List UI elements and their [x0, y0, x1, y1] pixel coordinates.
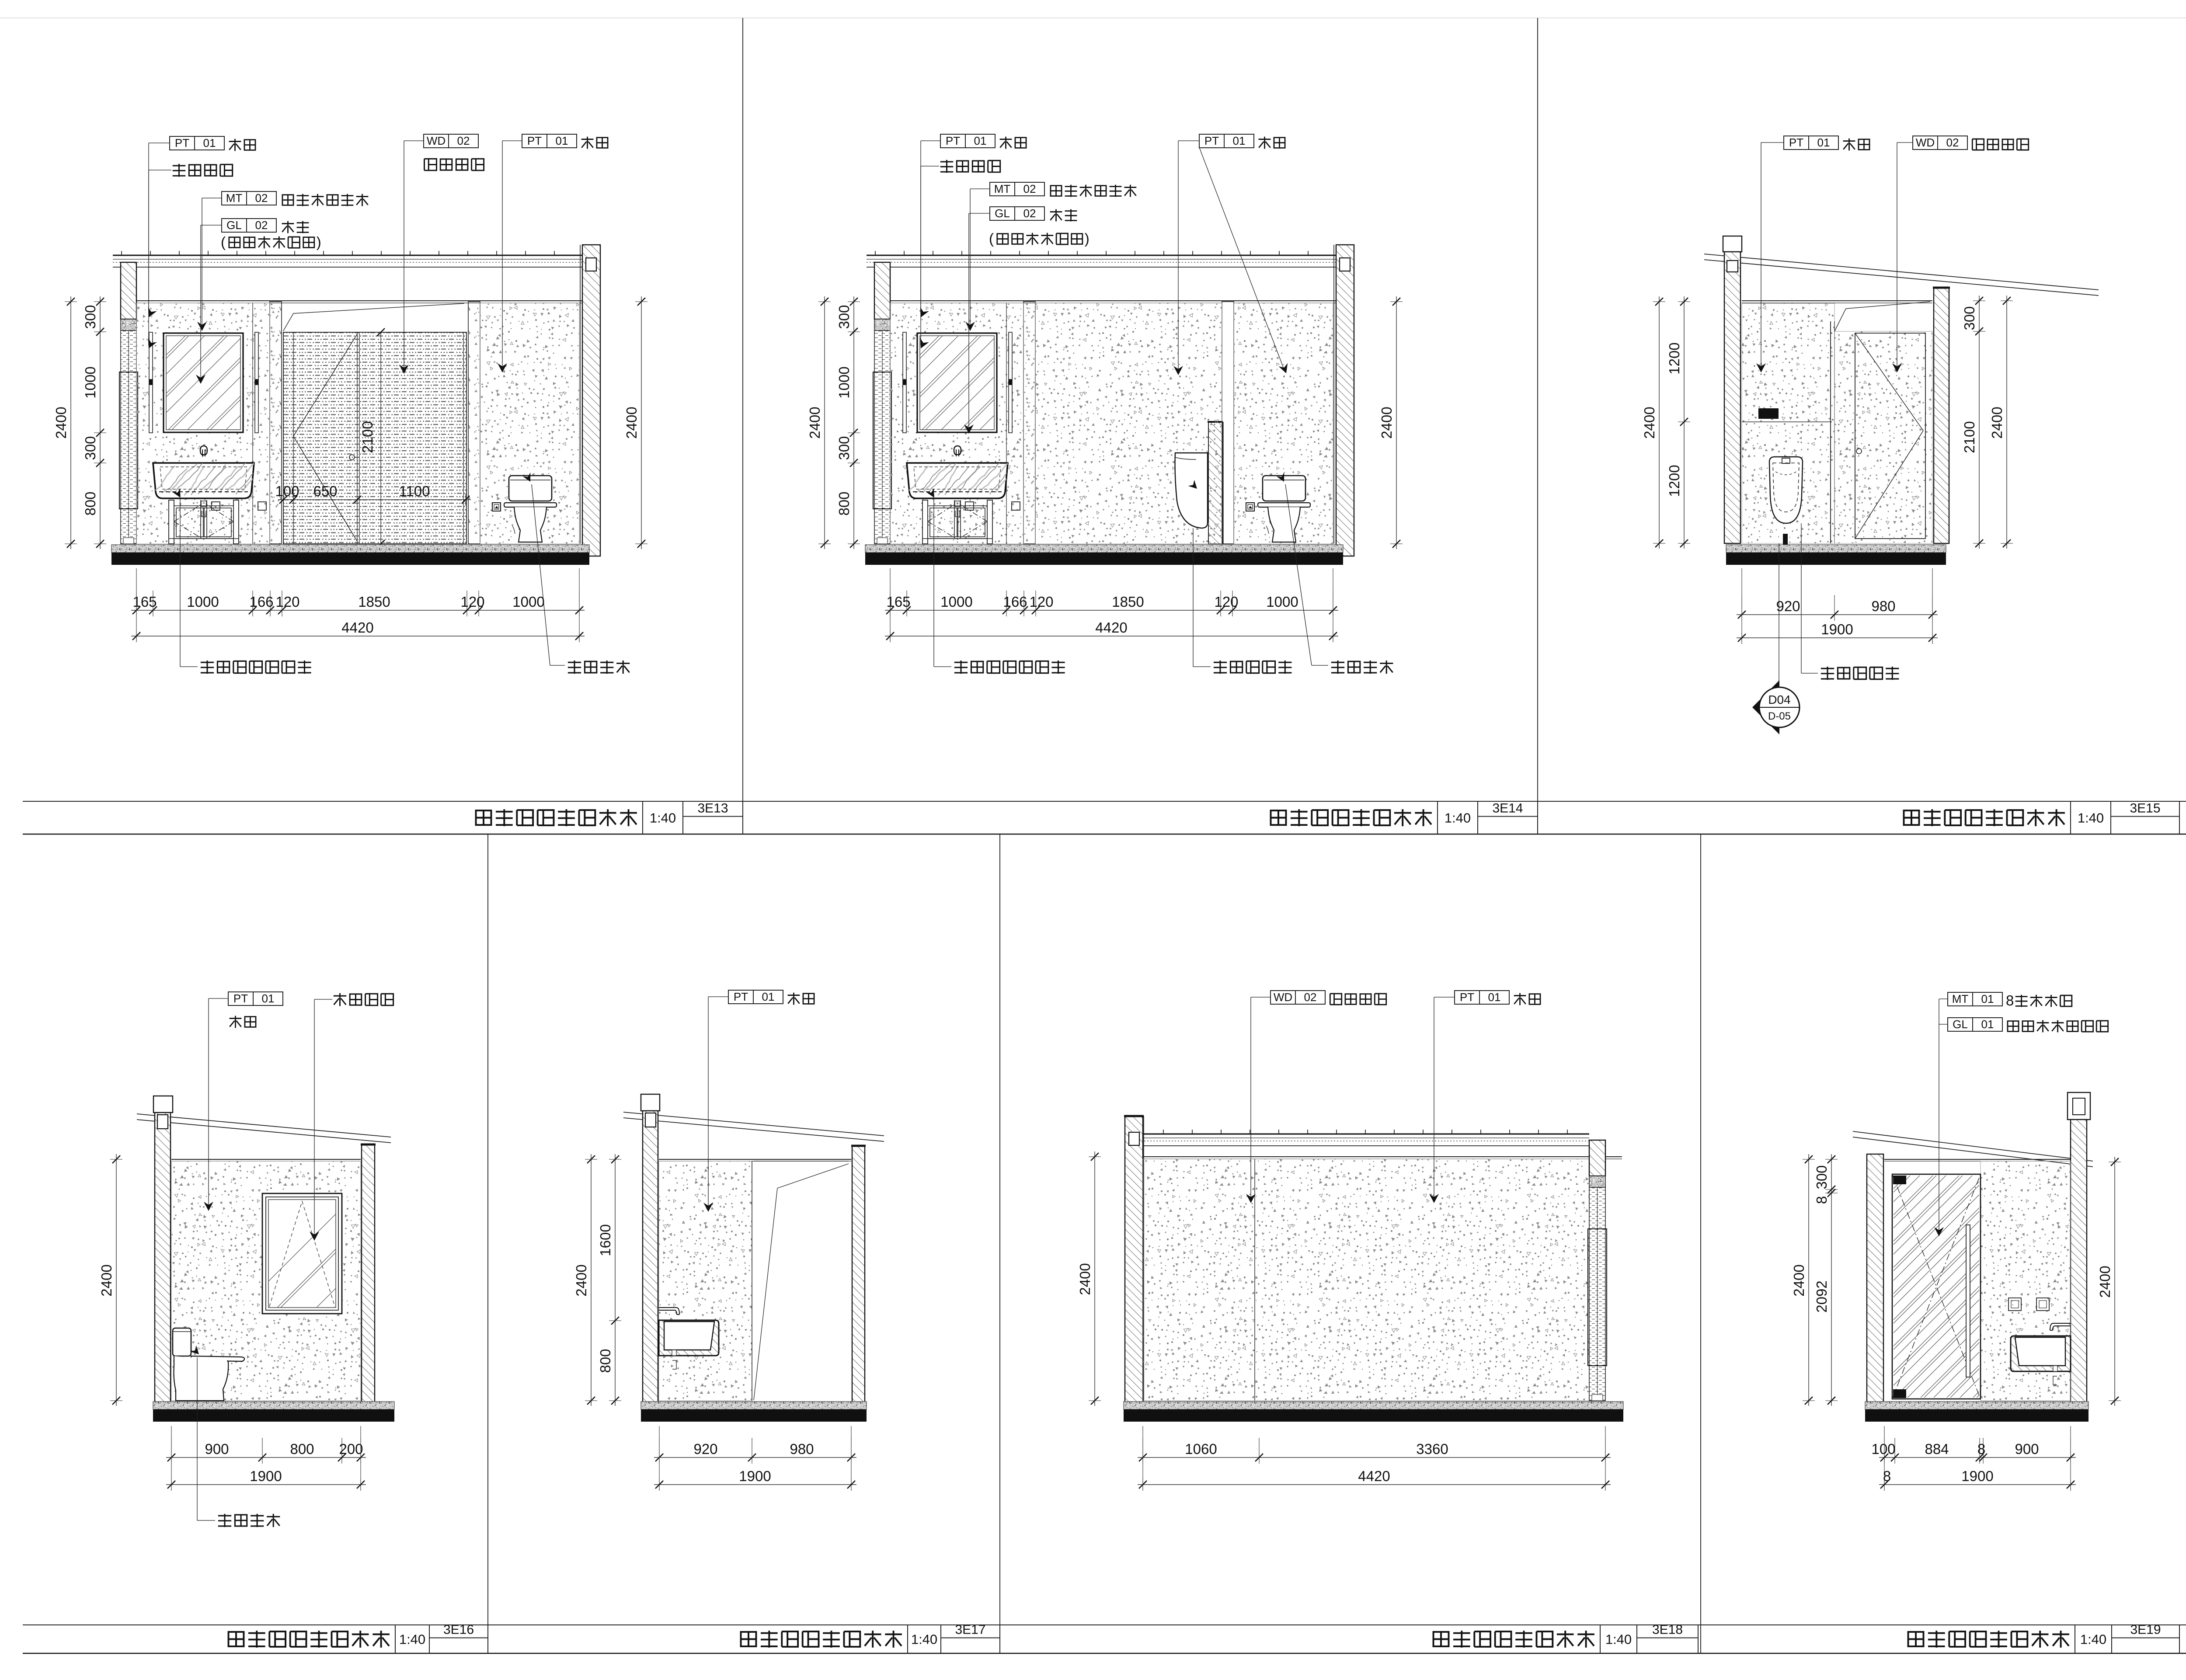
- svg-text:1850: 1850: [358, 594, 390, 610]
- svg-text:980: 980: [1871, 598, 1895, 614]
- svg-text:3E14: 3E14: [1492, 801, 1523, 816]
- svg-text:1850: 1850: [1112, 594, 1144, 610]
- svg-text:1:40: 1:40: [911, 1632, 937, 1647]
- svg-text:2100: 2100: [359, 421, 376, 453]
- svg-text:800: 800: [597, 1349, 613, 1373]
- svg-text:2400: 2400: [1989, 407, 2005, 438]
- svg-text:920: 920: [693, 1441, 717, 1457]
- svg-text:2400: 2400: [1378, 407, 1395, 438]
- svg-text:3E13: 3E13: [697, 801, 728, 816]
- svg-text:02: 02: [1023, 207, 1036, 220]
- svg-text:PT: PT: [527, 134, 542, 147]
- svg-text:1:40: 1:40: [1445, 810, 1471, 826]
- svg-text:100: 100: [1871, 1441, 1895, 1457]
- svg-text:01: 01: [203, 136, 216, 150]
- svg-text:): ): [317, 234, 321, 250]
- svg-text:1:40: 1:40: [2078, 810, 2104, 826]
- svg-text:300: 300: [82, 305, 98, 329]
- svg-text:4420: 4420: [341, 619, 373, 636]
- svg-text:2400: 2400: [98, 1264, 115, 1296]
- svg-text:MT: MT: [226, 191, 243, 205]
- svg-text:1:40: 1:40: [399, 1632, 425, 1647]
- svg-text:2400: 2400: [1641, 407, 1657, 438]
- svg-text:920: 920: [1776, 598, 1800, 614]
- svg-text:2400: 2400: [573, 1264, 589, 1296]
- svg-text:(: (: [989, 230, 994, 247]
- svg-text:02: 02: [1946, 136, 1959, 149]
- svg-text:2400: 2400: [1791, 1264, 1807, 1296]
- svg-text:120: 120: [1214, 594, 1238, 610]
- svg-text:GL: GL: [995, 207, 1010, 220]
- svg-text:1000: 1000: [187, 594, 219, 610]
- svg-text:300: 300: [836, 305, 852, 329]
- svg-text:2400: 2400: [1077, 1263, 1093, 1295]
- svg-text:166: 166: [1003, 594, 1027, 610]
- svg-text:WD: WD: [1916, 136, 1935, 149]
- svg-text:1000: 1000: [836, 366, 852, 398]
- svg-text:300: 300: [836, 436, 852, 460]
- svg-text:01: 01: [762, 990, 775, 1003]
- svg-text:200: 200: [339, 1441, 363, 1457]
- svg-text:800: 800: [836, 491, 852, 515]
- svg-text:D-05: D-05: [1768, 710, 1791, 722]
- svg-text:4420: 4420: [1095, 619, 1127, 636]
- svg-text:300: 300: [82, 436, 98, 460]
- svg-text:01: 01: [1817, 136, 1830, 149]
- svg-text:MT: MT: [994, 182, 1011, 195]
- svg-text:120: 120: [275, 594, 299, 610]
- svg-text:MT: MT: [1952, 992, 1969, 1005]
- svg-text:1000: 1000: [940, 594, 972, 610]
- svg-text:3E17: 3E17: [955, 1623, 985, 1637]
- svg-text:980: 980: [790, 1441, 814, 1457]
- svg-text:1900: 1900: [1961, 1468, 1993, 1484]
- svg-text:PT: PT: [734, 990, 748, 1003]
- svg-text:900: 900: [2015, 1441, 2039, 1457]
- svg-text:2400: 2400: [807, 407, 823, 438]
- svg-text:01: 01: [1981, 992, 1994, 1005]
- svg-text:1000: 1000: [512, 594, 544, 610]
- svg-text:01: 01: [1981, 1018, 1994, 1031]
- svg-text:3E16: 3E16: [443, 1623, 474, 1637]
- svg-text:1:40: 1:40: [1605, 1632, 1632, 1647]
- svg-text:120: 120: [460, 594, 484, 610]
- svg-text:1:40: 1:40: [2080, 1632, 2106, 1647]
- svg-text:WD: WD: [1274, 991, 1292, 1004]
- svg-text:3E15: 3E15: [2130, 801, 2160, 816]
- svg-text:2400: 2400: [2097, 1266, 2113, 1297]
- svg-text:02: 02: [1023, 182, 1036, 195]
- svg-text:PT: PT: [1789, 136, 1803, 149]
- svg-text:166: 166: [249, 594, 273, 610]
- svg-text:GL: GL: [226, 219, 242, 232]
- svg-text:2092: 2092: [1814, 1280, 1830, 1312]
- svg-text:4420: 4420: [1358, 1468, 1390, 1484]
- svg-text:1600: 1600: [597, 1224, 613, 1256]
- svg-text:1000: 1000: [82, 366, 98, 398]
- svg-text:PT: PT: [1460, 991, 1474, 1004]
- svg-text:8: 8: [2006, 992, 2014, 1009]
- svg-text:1100: 1100: [399, 483, 430, 499]
- svg-text:2100: 2100: [1961, 421, 1977, 453]
- svg-text:300: 300: [1961, 306, 1977, 330]
- svg-text:900: 900: [205, 1441, 229, 1457]
- svg-text:100: 100: [275, 483, 299, 499]
- svg-text:800: 800: [82, 491, 98, 515]
- svg-text:3360: 3360: [1416, 1441, 1448, 1457]
- svg-text:WD: WD: [427, 134, 446, 147]
- svg-text:3E18: 3E18: [1652, 1623, 1683, 1637]
- svg-text:1200: 1200: [1666, 465, 1682, 497]
- svg-text:2400: 2400: [53, 407, 69, 438]
- svg-text:PT: PT: [233, 992, 248, 1005]
- svg-text:1:40: 1:40: [650, 810, 676, 826]
- svg-text:01: 01: [1233, 134, 1246, 147]
- svg-text:1200: 1200: [1666, 342, 1682, 374]
- svg-text:2400: 2400: [623, 407, 640, 438]
- svg-text:01: 01: [974, 134, 987, 147]
- svg-text:650: 650: [313, 483, 337, 499]
- svg-text:1000: 1000: [1266, 594, 1298, 610]
- svg-text:02: 02: [255, 219, 268, 232]
- svg-text:(: (: [221, 234, 226, 250]
- svg-text:884: 884: [1925, 1441, 1949, 1457]
- svg-text:1900: 1900: [250, 1468, 282, 1484]
- svg-text:3E19: 3E19: [2130, 1623, 2161, 1637]
- svg-text:): ): [1085, 230, 1090, 247]
- svg-text:01: 01: [262, 992, 275, 1005]
- svg-text:02: 02: [255, 191, 268, 205]
- svg-text:01: 01: [556, 134, 568, 147]
- svg-text:02: 02: [1304, 991, 1317, 1004]
- svg-text:PT: PT: [175, 136, 189, 150]
- svg-text:PT: PT: [1204, 134, 1219, 147]
- svg-text:GL: GL: [1953, 1018, 1968, 1031]
- svg-text:1060: 1060: [1185, 1441, 1217, 1457]
- svg-text:300: 300: [1814, 1165, 1830, 1189]
- svg-text:8: 8: [1977, 1441, 1985, 1457]
- svg-text:D04: D04: [1768, 693, 1790, 706]
- svg-text:120: 120: [1029, 594, 1053, 610]
- svg-text:1900: 1900: [1821, 621, 1853, 637]
- svg-text:01: 01: [1488, 991, 1501, 1004]
- svg-text:PT: PT: [946, 134, 960, 147]
- svg-text:02: 02: [457, 134, 470, 147]
- svg-text:800: 800: [290, 1441, 314, 1457]
- svg-text:1900: 1900: [739, 1468, 771, 1484]
- svg-text:8: 8: [1814, 1196, 1830, 1204]
